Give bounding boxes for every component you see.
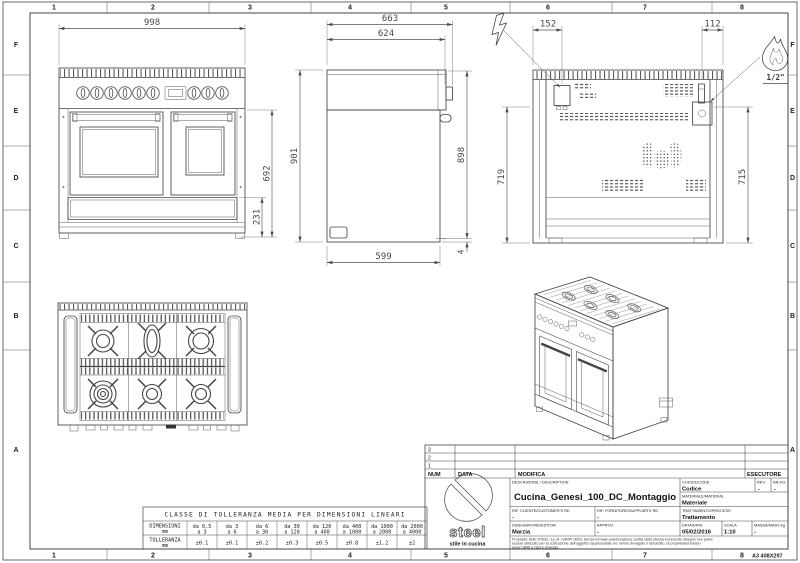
lightning-bolt-icon <box>492 13 507 46</box>
steel-logo: steel stile in cucina <box>445 474 493 548</box>
display-panel <box>165 87 186 100</box>
frame-row-label: E <box>14 108 19 115</box>
side-foot <box>330 227 347 238</box>
dim-front-width: 998 <box>144 18 160 28</box>
dim-side-height-left: 901 <box>290 148 300 164</box>
iso-knobs <box>538 315 595 342</box>
frame-col-label: 1 <box>52 5 56 12</box>
control-knobs <box>77 87 229 100</box>
top-view <box>58 303 247 431</box>
mounting-tabs <box>70 425 239 432</box>
gas-thread-label: 1/2" <box>766 73 784 82</box>
customer-ref-label: RIF. CLIENTE/CUSTOMER'S RE. <box>512 508 571 513</box>
svg-text:±0.1: ±0.1 <box>196 541 209 547</box>
mass-label: MASSA/MASS kg <box>754 523 785 528</box>
dim-back-height-left: 719 <box>497 169 507 185</box>
tolerance-table: CLASSE DI TOLLERANZA MEDIA PER DIMENSION… <box>143 507 427 549</box>
sheet-format-label: A3 408X297 <box>752 554 783 560</box>
code-label: CODICE/CODE <box>682 480 710 485</box>
back-view: 152 112 719 715 1/2" <box>492 13 788 243</box>
dim-side-depth-total: 663 <box>382 14 398 24</box>
frame-col-label: 8 <box>740 5 744 12</box>
editor-value: Marzia <box>512 530 531 536</box>
process-label: TRATTAMENTO/PROCESS <box>682 508 731 513</box>
side-view: 663 624 901 898 4 599 <box>290 14 472 266</box>
dim-side-rear-gap: 4 <box>457 249 466 254</box>
svg-text:a 6: a 6 <box>227 530 236 536</box>
dim-back-gas-offset: 112 <box>704 20 720 30</box>
process-value: Trattamento <box>682 515 716 521</box>
svg-text:a 4000: a 4000 <box>403 530 422 536</box>
vent-grille <box>602 178 643 192</box>
frame-col-label: 3 <box>248 5 252 12</box>
dim-side-depth-top: 624 <box>378 29 394 39</box>
svg-text:mm: mm <box>162 529 168 535</box>
dim-side-height-right: 898 <box>457 147 467 163</box>
svg-text:mm: mm <box>162 543 168 549</box>
revision-row: 2 <box>428 456 431 462</box>
svg-text:a 3: a 3 <box>197 530 206 536</box>
svg-text:±1.2: ±1.2 <box>376 541 389 547</box>
technical-drawing-sheet: 1 2 3 4 5 6 7 8 1 2 3 4 5 6 7 8 F E D C … <box>0 0 800 563</box>
svg-text:±0.2: ±0.2 <box>256 541 269 547</box>
svg-text:a 400: a 400 <box>314 530 330 536</box>
front-view: 998 692 231 <box>59 18 277 239</box>
frame-col-label: 1 <box>52 553 56 560</box>
vent-grille <box>663 84 693 97</box>
col-modifica-header: MODIFICA <box>518 472 545 478</box>
vent-grille <box>575 83 591 90</box>
dim-back-electric-offset: 152 <box>540 20 556 30</box>
description-value: Cucina_Genesi_100_DC_Montaggio <box>514 492 676 503</box>
editor-label: DISEGNATORE/EDITOR <box>512 523 556 528</box>
disclaimer-line: propri diritti a rigore di legge. <box>512 546 559 550</box>
approv-value: - <box>597 530 599 536</box>
vent-grille <box>579 92 596 99</box>
dim-front-drawer-height: 231 <box>253 209 263 225</box>
svg-text:±0.8: ±0.8 <box>346 541 359 547</box>
frame-row-label: B <box>13 313 18 320</box>
rev-label: REV. <box>757 480 766 485</box>
vent-holes <box>642 143 682 169</box>
mass-value: - <box>754 530 756 536</box>
drawing-canvas: 1 2 3 4 5 6 7 8 1 2 3 4 5 6 7 8 F E D C … <box>0 0 800 563</box>
revision-row: 3 <box>428 448 431 454</box>
logo-text: steel <box>449 524 486 541</box>
approv-label: APPROV. <box>597 523 614 528</box>
frame-row-label: A <box>790 447 795 454</box>
svg-text:±2: ±2 <box>409 541 415 547</box>
gas-inlet <box>693 84 713 125</box>
date-value: 05/02/2016 <box>682 530 712 536</box>
frame-col-label: 8 <box>740 553 744 560</box>
frame-col-label: 2 <box>151 553 155 560</box>
description-label: DESCRIZIONE / DESCRIPTION <box>512 480 569 485</box>
frame-col-label: 5 <box>444 553 448 560</box>
col-data-header: DATA <box>458 472 472 478</box>
title-block: 3 2 1 NUM DATA MODIFICA ESECUTORE DESCRI… <box>425 445 788 550</box>
tolerance-table-title: CLASSE DI TOLLERANZA MEDIA PER DIMENSION… <box>164 512 405 519</box>
side-knob-profile <box>446 87 453 100</box>
frame-col-label: 5 <box>444 5 448 12</box>
sheet-no-value: - <box>774 487 776 493</box>
svg-text:±0.1: ±0.1 <box>226 541 239 547</box>
dim-side-depth-base: 599 <box>375 252 391 262</box>
frame-row-label: D <box>790 175 795 182</box>
frame-row-label: A <box>13 447 18 454</box>
isometric-view <box>535 277 673 440</box>
material-label: MATERIALE/MATERIAL <box>682 494 725 499</box>
svg-text:a 30: a 30 <box>256 530 269 536</box>
frame-col-label: 7 <box>643 5 647 12</box>
col-num-header: NUM <box>428 472 441 478</box>
side-handle-profile <box>440 115 451 123</box>
frame-row-label: C <box>790 243 795 250</box>
oven-doors <box>70 112 235 195</box>
frame-row-label: B <box>790 313 795 320</box>
frame-row-label: F <box>790 42 795 49</box>
col-esecutore-header: ESECUTORE <box>747 472 781 478</box>
revision-row: 1 <box>428 464 431 470</box>
frame-row-label: C <box>13 243 18 250</box>
material-value: Materiale <box>682 501 708 507</box>
flame-icon <box>762 37 787 71</box>
vent-grille <box>686 178 706 192</box>
frame-row-label: F <box>14 42 19 49</box>
iso-burners <box>561 284 642 321</box>
vent-grille <box>559 113 688 121</box>
scale-value: 1:10 <box>724 530 736 536</box>
rating-plate <box>660 398 673 407</box>
frame-col-label: 6 <box>546 553 550 560</box>
storage-drawer <box>68 198 237 220</box>
date-label: DATA/DATE <box>682 523 703 528</box>
svg-text:a 120: a 120 <box>284 530 300 536</box>
svg-text:±0.3: ±0.3 <box>286 541 299 547</box>
sheet-no-label: NR.FG. <box>773 480 786 485</box>
frame-col-label: 4 <box>348 5 352 12</box>
scale-label: SCALA <box>724 523 737 528</box>
frame-col-label: 6 <box>546 5 550 12</box>
frame-row-label: D <box>13 175 18 182</box>
dim-front-oven-height: 692 <box>263 165 273 181</box>
frame-row-label: E <box>790 108 795 115</box>
frame-col-label: 4 <box>348 553 352 560</box>
supplier-ref-label: RIF. FORNITORE/SUPPLIER'S RE. <box>597 508 659 513</box>
frame-col-label: 3 <box>248 553 252 560</box>
code-value: Codice <box>682 487 702 493</box>
logo-tagline: stile in cucina <box>450 542 487 548</box>
dim-back-height-right: 715 <box>738 169 748 185</box>
svg-text:a 2000: a 2000 <box>373 530 392 536</box>
frame-col-label: 2 <box>151 5 155 12</box>
customer-ref-value: - <box>512 515 514 521</box>
supplier-ref-value: - <box>597 515 599 521</box>
electric-junction-box <box>554 86 570 106</box>
rev-value: - <box>758 487 760 493</box>
svg-text:a 1000: a 1000 <box>343 530 362 536</box>
svg-text:±0.5: ±0.5 <box>316 541 329 547</box>
frame-col-label: 7 <box>643 553 647 560</box>
